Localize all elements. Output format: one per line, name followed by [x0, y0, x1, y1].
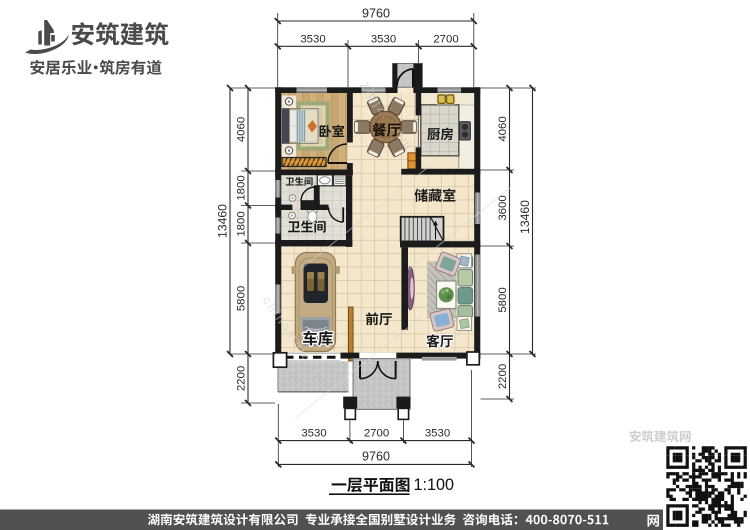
- svg-text:3600: 3600: [497, 195, 509, 220]
- svg-text:3530: 3530: [301, 428, 326, 440]
- svg-text:1800: 1800: [236, 211, 248, 236]
- svg-text:2700: 2700: [364, 428, 389, 440]
- svg-text:2200: 2200: [497, 364, 509, 389]
- svg-text:3530: 3530: [425, 428, 450, 440]
- svg-text:5800: 5800: [497, 287, 509, 312]
- svg-text:13460: 13460: [216, 204, 230, 238]
- svg-text:3530: 3530: [300, 34, 325, 46]
- svg-text:9760: 9760: [362, 7, 390, 21]
- svg-text:3530: 3530: [371, 34, 396, 46]
- svg-text:13460: 13460: [518, 200, 532, 234]
- svg-text:1800: 1800: [236, 175, 248, 200]
- svg-text:9760: 9760: [362, 449, 390, 463]
- svg-text:2200: 2200: [236, 366, 248, 391]
- svg-text:1:100: 1:100: [414, 476, 455, 494]
- svg-text:2700: 2700: [433, 34, 458, 46]
- svg-text:4060: 4060: [497, 116, 509, 141]
- svg-text:4060: 4060: [236, 117, 248, 142]
- svg-text:5800: 5800: [236, 286, 248, 311]
